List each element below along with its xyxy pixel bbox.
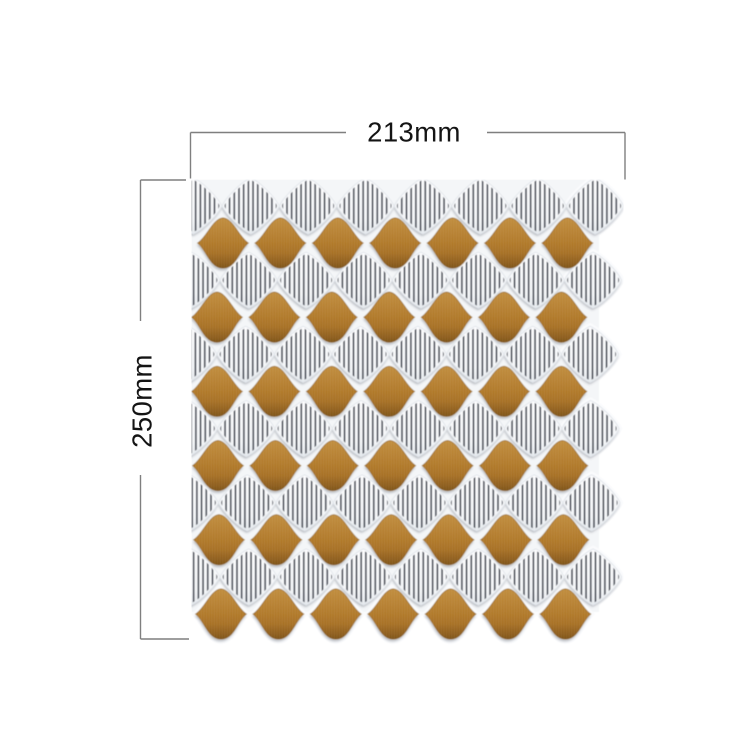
svg-text:213mm: 213mm (367, 117, 461, 148)
svg-text:250mm: 250mm (127, 354, 158, 448)
